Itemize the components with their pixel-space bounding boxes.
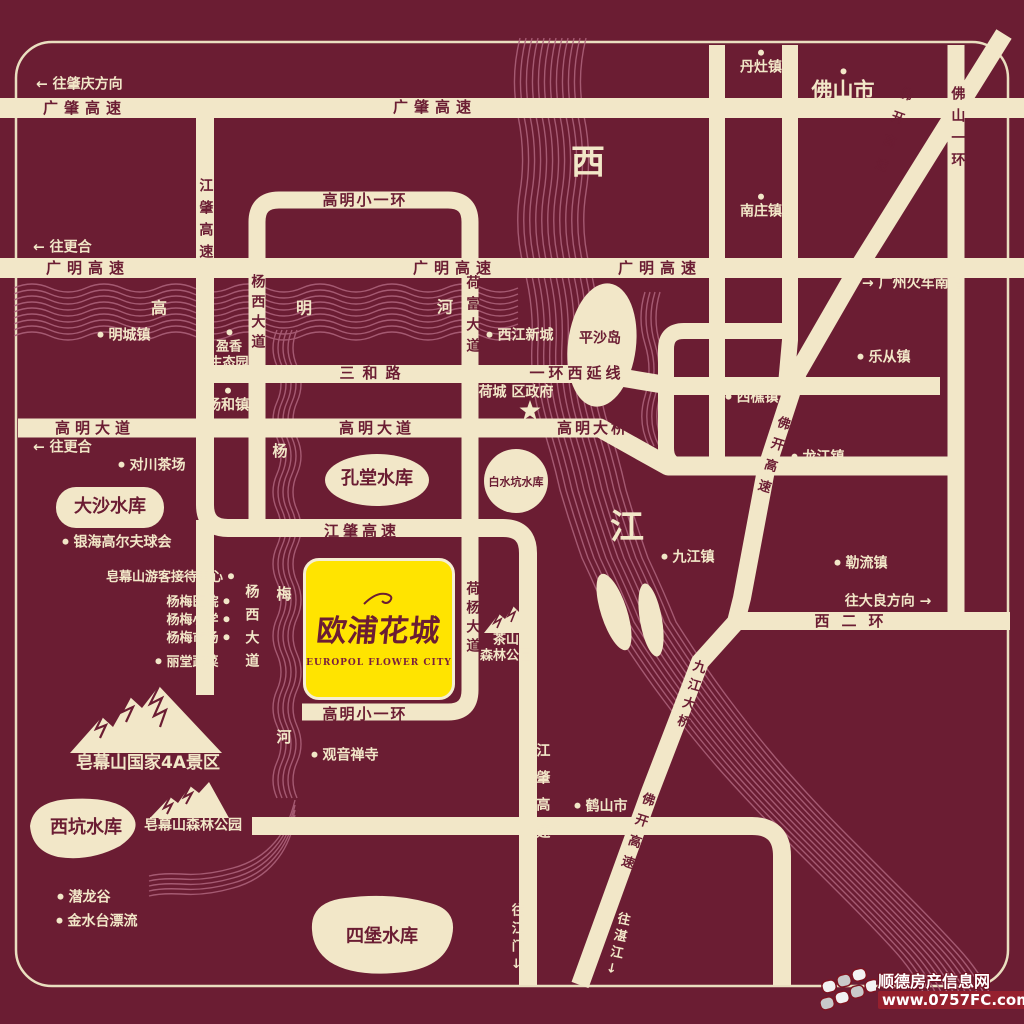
- direction-daliang: 往大良方向 →: [845, 594, 932, 611]
- water-label-baishuikeng: 白水坑水库: [489, 475, 544, 488]
- road-label-gaoming-avenue-west: 高明大道: [55, 419, 135, 437]
- road-label-yangxi-north: 杨西大道: [249, 274, 266, 354]
- project-name: 欧浦花城: [315, 606, 444, 650]
- river-char-jiang: 江: [610, 508, 644, 549]
- direction-guangzhou-south-station: → 广州火车南站: [862, 276, 963, 293]
- poi-qianlong: 潜龙谷: [58, 890, 111, 907]
- river-char-gao: 高: [151, 298, 167, 317]
- poi-duichuan: 对川茶场: [119, 458, 186, 475]
- poi-xijiang-newtown: 西江新城: [487, 328, 554, 345]
- road-label-guangming-west: 广明高速: [46, 259, 130, 277]
- road-label-gaoming-bridge: 高明大桥: [557, 419, 629, 437]
- logo-site-url: www.0757FC.com: [878, 991, 1024, 1009]
- direction-genghe-north: ← 往更合: [33, 240, 92, 257]
- direction-zhaoqing: ← 往肇庆方向: [36, 77, 123, 94]
- road-label-jiangzhao-middle: 江肇高速: [324, 522, 400, 540]
- direction-jiangmen: 往江门↓: [508, 903, 524, 977]
- road-label-guangming-center: 广明高速: [413, 259, 497, 277]
- road-vertical-790: [785, 45, 790, 396]
- road-label-hefu-avenue: 荷富大道: [464, 275, 481, 359]
- poi-heshan: 鹤山市: [575, 799, 628, 816]
- map-border: [16, 42, 1008, 986]
- poi-yangmei-hospital: 杨梅医院: [166, 595, 229, 611]
- poi-jinshuitai: 金水台漂流: [57, 914, 138, 931]
- water-label-xikeng: 西坑水库: [50, 817, 122, 839]
- direction-genghe-south: ← 往更合: [33, 440, 92, 457]
- road-label-guangzhao-center: 广肇高速: [393, 98, 477, 116]
- government-star-icon: [520, 400, 541, 420]
- road-label-xi-er-huan: 西二环: [814, 612, 895, 630]
- road-label-jiangzhao-north: 江肇高速: [197, 178, 214, 266]
- poi-mingcheng: 明城镇: [98, 328, 151, 345]
- river-char-xi: 西: [571, 143, 605, 184]
- water-label-sibao: 四堡水库: [346, 926, 418, 948]
- road-label-yihuan-west-ext: 一环西延线: [529, 364, 624, 382]
- road-label-small-ring-top: 高明小一环: [322, 191, 407, 209]
- logo-site-name: 顺德房产信息网: [878, 968, 990, 992]
- poi-nanzhuang: 南庄镇: [740, 194, 782, 221]
- road-label-small-ring-bottom: 高明小一环: [322, 705, 407, 723]
- road-label-heyang-avenue: 荷杨大道: [464, 581, 481, 657]
- poi-longjiang: 龙江镇: [792, 450, 845, 467]
- poi-yangmei-market: 杨梅市场: [166, 631, 229, 647]
- river-char-mei: 梅: [276, 585, 291, 603]
- road-label-foshan-yihuan: 佛山一环: [949, 86, 966, 174]
- project-highlight-box: 欧浦花城 EUROPOL FLOWER CITY: [303, 558, 455, 700]
- map-graphics: [0, 0, 1024, 1024]
- poi-yingxiang-line1: 盈香: [209, 339, 248, 355]
- watermark-logo: 顺德房产信息网 www.0757FC.com: [820, 966, 1022, 1018]
- road-label-jiangzhao-south: 江肇高速: [534, 743, 551, 851]
- island-small-1: [589, 570, 638, 654]
- river-char-he2: 河: [276, 728, 291, 746]
- flourish-icon: [362, 590, 396, 606]
- poi-chashan-line2: 森林公园: [480, 648, 532, 664]
- poi-zaomu-visitor-center: 皂幕山游客接待中心: [106, 570, 234, 586]
- road-label-guangzhao-west: 广肇高速: [43, 99, 127, 117]
- road-label-gaoming-avenue-center: 高明大道: [339, 419, 415, 437]
- river-char-ming: 明: [296, 298, 312, 317]
- poi-guanyin-temple: 观音禅寺: [312, 748, 379, 765]
- road-label-yangxi-south: 杨西大道: [243, 584, 260, 676]
- poi-foshan-city: 佛山市: [812, 68, 875, 103]
- river-char-he: 河: [437, 297, 453, 316]
- poi-yanghe: 杨和镇: [207, 388, 249, 415]
- location-map: 欧浦花城 EUROPOL FLOWER CITY ← 往肇庆方向 ← 往更合 ←…: [0, 0, 1024, 1024]
- road-label-sanhe: 三和路: [339, 364, 408, 382]
- poi-zaomu-4a: 皂幕山国家4A景区: [76, 753, 220, 773]
- mountain-zaomu-4a-icon: [70, 686, 222, 753]
- poi-yangmei-school: 杨梅小学: [166, 613, 229, 629]
- poi-jiujiang-town: 九江镇: [662, 550, 715, 567]
- project-name-en: EUROPOL FLOWER CITY: [306, 658, 452, 668]
- poi-hecheng-government: 荷城 区政府: [479, 385, 554, 402]
- roof-tiles-icon: [820, 968, 876, 1016]
- poi-yinhai-golf: 银海高尔夫球会: [63, 535, 172, 552]
- water-label-kongtang: 孔堂水库: [341, 468, 413, 490]
- poi-yingxiang-line2: 生态园: [209, 355, 248, 371]
- road-label-guangming-east: 广明高速: [618, 259, 702, 277]
- water-label-pingsha: 平沙岛: [579, 331, 621, 348]
- poi-xiqiao: 西樵镇: [726, 390, 779, 407]
- river-char-yang: 杨: [272, 442, 287, 460]
- poi-lecong: 乐从镇: [858, 350, 911, 367]
- poi-danzao: 丹灶镇: [740, 50, 782, 77]
- poi-zaomu-forest-park: 皂幕山森林公园: [144, 818, 242, 835]
- poi-litang: 丽堂蔬菜: [155, 655, 218, 671]
- poi-chashan-line1: 茶山: [480, 632, 532, 648]
- poi-leliu: 勒流镇: [835, 556, 888, 573]
- water-label-dasha: 大沙水库: [74, 496, 146, 518]
